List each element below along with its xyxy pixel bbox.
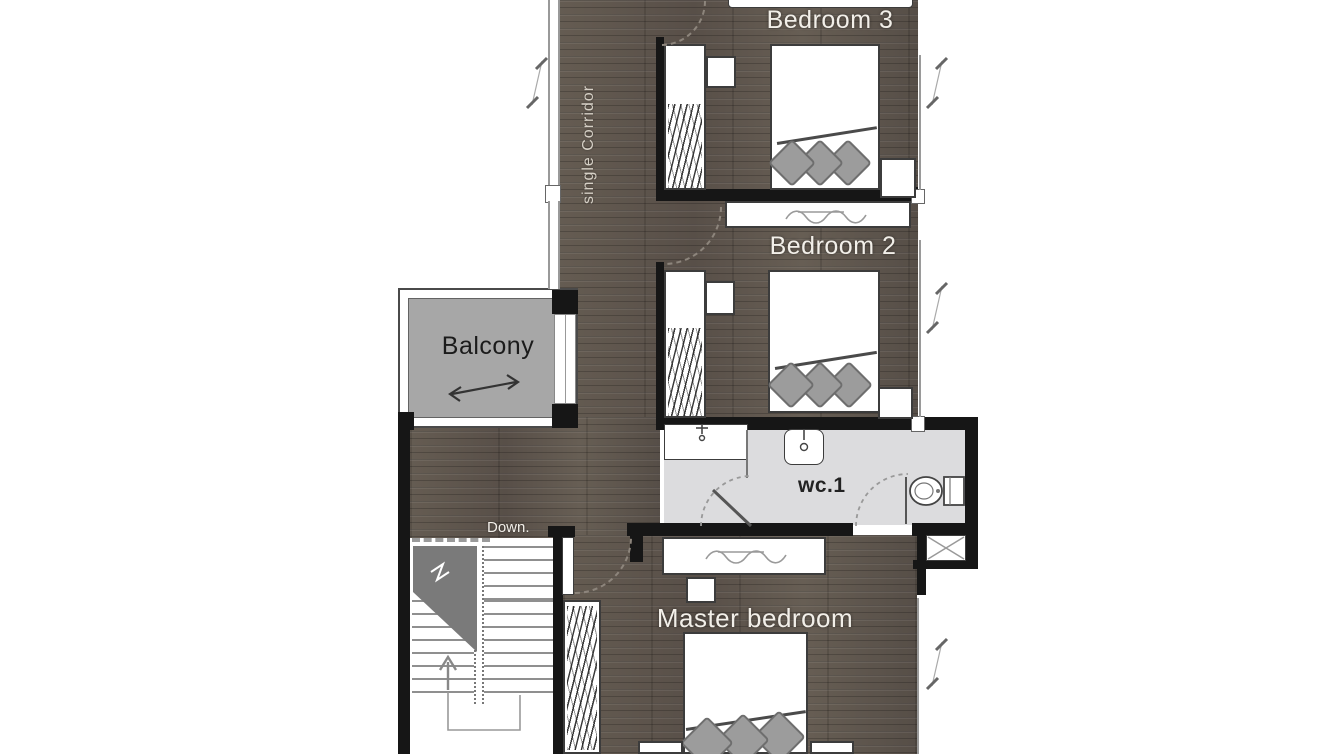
dimension-marker	[527, 58, 547, 108]
stairs-cut-line	[474, 546, 484, 704]
master-nightstand-right	[810, 741, 854, 754]
hanger-rail-icon	[668, 328, 702, 416]
bedroom3-foot-table	[880, 158, 916, 198]
stair-treads	[477, 546, 553, 604]
dimension-marker	[927, 639, 947, 689]
wc-partition	[746, 430, 748, 478]
room-label-bedroom2: Bedroom 2	[748, 232, 918, 261]
wall-corridor-bedroom3	[656, 37, 664, 201]
room-label-master-bedroom: Master bedroom	[650, 603, 860, 634]
wall-master-door-post	[630, 526, 643, 562]
wall-left-corridor	[398, 413, 410, 754]
corridor-label: single Corridor	[580, 34, 598, 204]
wall-junction-marker	[911, 416, 925, 432]
wall-corridor-bedroom2	[656, 262, 664, 420]
balcony-corner-post	[552, 404, 578, 428]
wc-vanity-counter	[664, 424, 748, 460]
bedroom2-nightstand	[705, 281, 735, 315]
hanger-rail-icon	[668, 104, 702, 188]
window-line	[548, 201, 560, 289]
stairs-down-label: Down.	[487, 519, 530, 536]
sink-icon	[784, 429, 824, 465]
bedroom3-wardrobe	[664, 44, 706, 190]
wall-wc-bottom	[627, 523, 853, 536]
shower-tray	[926, 535, 966, 561]
balcony-corner-post	[552, 290, 578, 314]
bedroom2-wardrobe	[664, 270, 706, 418]
master-door-leaf	[562, 537, 574, 595]
window-line	[548, 0, 560, 185]
wall-bedroom3-bedroom2	[660, 189, 913, 201]
bedroom2-dresser	[725, 201, 911, 228]
floor-plan: Bedroom 3 Bedroom 2 Master bedroom Balco…	[0, 0, 1342, 754]
bedroom3-nightstand	[706, 56, 736, 88]
dimension-marker	[927, 58, 947, 108]
window-line	[917, 598, 919, 754]
room-label-balcony: Balcony	[408, 332, 568, 361]
room-label-wc: wc.1	[798, 474, 846, 498]
wall-master-top-stub	[548, 526, 575, 537]
dimension-marker	[927, 283, 947, 333]
bedroom2-foot-table	[878, 387, 913, 419]
stairs-dotted-edge	[412, 538, 490, 542]
wall-shower-bottom	[913, 560, 978, 569]
room-label-bedroom3: Bedroom 3	[745, 6, 915, 35]
hanger-rail-icon	[567, 606, 597, 750]
window-line	[919, 55, 921, 190]
master-nightstand	[686, 577, 716, 603]
master-dresser	[662, 537, 826, 575]
wood-floor-corridor	[410, 417, 660, 538]
window-line	[919, 240, 921, 417]
wall-wc-right	[965, 417, 978, 567]
master-wardrobe	[563, 600, 601, 754]
master-nightstand-left	[638, 741, 683, 754]
